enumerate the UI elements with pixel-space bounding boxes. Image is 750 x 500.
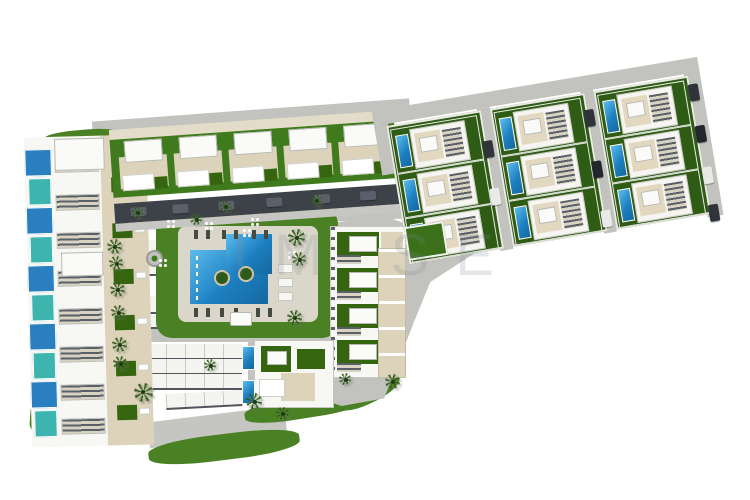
palm-trunk	[315, 199, 319, 203]
palm-trunk	[344, 378, 348, 382]
site-plan-render: IM SE	[0, 0, 750, 500]
palm-trunk	[113, 245, 117, 249]
palm-tree	[134, 383, 153, 402]
palm-trunk	[281, 412, 285, 416]
palm-tree	[111, 305, 125, 319]
palm-fronds	[112, 337, 127, 352]
palm-trunk	[117, 311, 121, 315]
palm-fronds	[339, 373, 351, 385]
palm-trunk	[119, 362, 123, 366]
palm-tree	[113, 356, 127, 370]
palm-fronds	[113, 356, 127, 370]
palm-trunk	[195, 218, 199, 222]
palm-trunk	[136, 211, 140, 215]
palm-fronds	[111, 305, 125, 319]
palm-tree	[385, 374, 400, 389]
palm-fronds	[110, 282, 125, 297]
palm-fronds	[132, 207, 143, 218]
palm-tree	[276, 407, 289, 420]
palm-trunk	[224, 205, 228, 209]
palm-fronds	[204, 359, 216, 371]
palm-fronds	[385, 374, 400, 389]
palm-trunk	[209, 364, 213, 368]
palm-trunk	[116, 288, 120, 292]
palm-fronds	[134, 383, 153, 402]
palm-trunk	[141, 390, 145, 394]
palm-fronds	[287, 310, 302, 325]
palm-fronds	[246, 393, 262, 409]
palm-fronds	[190, 213, 202, 225]
palm-trunk	[293, 316, 297, 320]
palm-tree	[204, 359, 216, 371]
palm-trunk	[118, 343, 122, 347]
palm-tree	[109, 256, 123, 270]
palm-tree	[339, 373, 351, 385]
palm-fronds	[311, 195, 322, 206]
palm-tree	[107, 239, 122, 254]
palm-trunk	[115, 262, 119, 266]
palm-fronds	[109, 256, 123, 270]
palm-tree	[132, 207, 143, 218]
palm-tree	[311, 195, 322, 206]
palm-tree	[246, 393, 262, 409]
palm-tree	[190, 213, 202, 225]
palm-tree	[220, 201, 231, 212]
watermark-text: IM SE	[232, 222, 520, 289]
palm-fronds	[107, 239, 122, 254]
palm-tree	[110, 282, 125, 297]
palm-trunk	[391, 380, 395, 384]
palm-tree	[112, 337, 127, 352]
palm-trunk	[253, 400, 257, 404]
palm-fronds	[276, 407, 289, 420]
palm-fronds	[220, 201, 231, 212]
palm-tree	[287, 310, 302, 325]
